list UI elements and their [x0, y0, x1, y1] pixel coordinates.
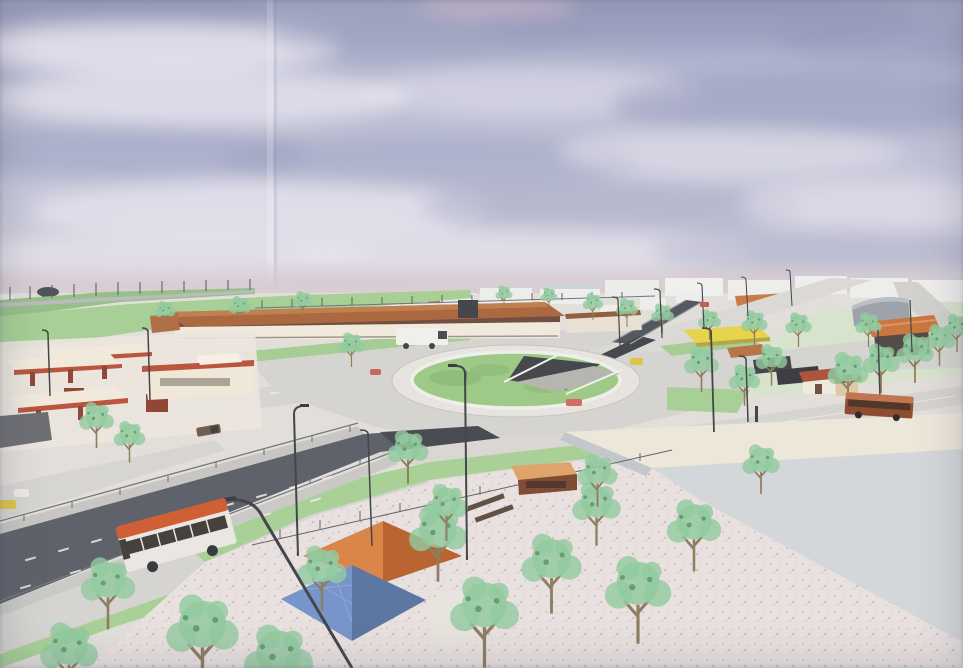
photo-cast — [0, 0, 963, 668]
rendering-photo — [0, 0, 963, 668]
